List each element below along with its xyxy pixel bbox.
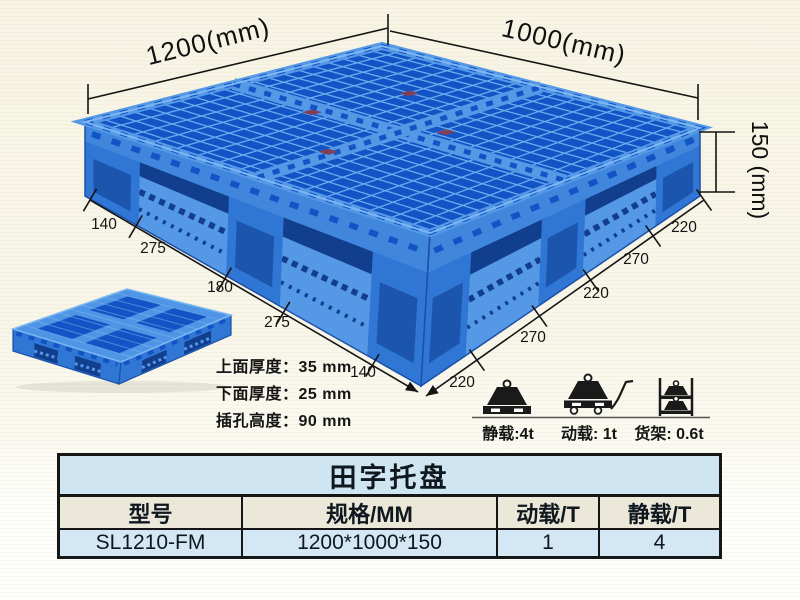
dynamic-load-icon xyxy=(564,375,633,414)
col-header-static-load: 静载/T xyxy=(598,497,719,528)
dim-label-right-4: 220 xyxy=(671,219,697,236)
spec-table-data-row: SL1210-FM 1200*1000*150 1 4 xyxy=(60,528,719,556)
load-rating-icons xyxy=(470,372,720,424)
dim-width-label: 1200(mm) xyxy=(143,11,273,71)
cell-dynamic-load: 1 xyxy=(496,530,598,556)
pallet-thumbnail xyxy=(5,283,240,395)
col-header-size: 规格/MM xyxy=(241,497,496,528)
dim-label-left-1: 275 xyxy=(140,240,166,257)
dim-label-left-0: 140 xyxy=(91,216,117,233)
dim-depth-label: 1000(mm) xyxy=(499,12,629,70)
cell-model: SL1210-FM xyxy=(60,530,241,556)
spec-table: 田字托盘 型号 规格/MM 动载/T 静载/T SL1210-FM 1200*1… xyxy=(57,453,722,559)
pallet-thumbnail-drawing xyxy=(13,289,231,393)
rack-load-label: 货架: 0.6t xyxy=(616,420,722,444)
note-fork-hole-height: 插孔高度：90 mm xyxy=(216,408,386,435)
dim-label-right-1: 270 xyxy=(520,329,546,346)
cell-static-load: 4 xyxy=(598,530,719,556)
dim-height-label: 150 (mm) xyxy=(747,121,773,219)
col-header-dynamic-load: 动载/T xyxy=(496,497,598,528)
note-bottom-thickness: 下面厚度：25 mm xyxy=(216,381,386,408)
dim-label-left-3: 275 xyxy=(264,314,290,331)
col-header-model: 型号 xyxy=(60,497,241,528)
rack-load-icon xyxy=(660,378,692,416)
spec-table-header-row: 型号 规格/MM 动载/T 静载/T xyxy=(60,494,719,528)
static-load-label: 静载:4t xyxy=(468,420,548,444)
spec-table-title: 田字托盘 xyxy=(60,456,719,494)
cell-size: 1200*1000*150 xyxy=(241,530,496,556)
dim-label-right-3: 270 xyxy=(623,251,649,268)
product-spec-sheet: 1200(mm) 1000(mm) 150 (mm) 140 275 180 2… xyxy=(0,0,800,600)
dim-label-right-2: 220 xyxy=(583,285,609,302)
note-top-thickness: 上面厚度：35 mm xyxy=(216,354,386,381)
thickness-notes: 上面厚度：35 mm 下面厚度：25 mm 插孔高度：90 mm xyxy=(216,354,386,435)
static-load-icon xyxy=(483,381,531,415)
